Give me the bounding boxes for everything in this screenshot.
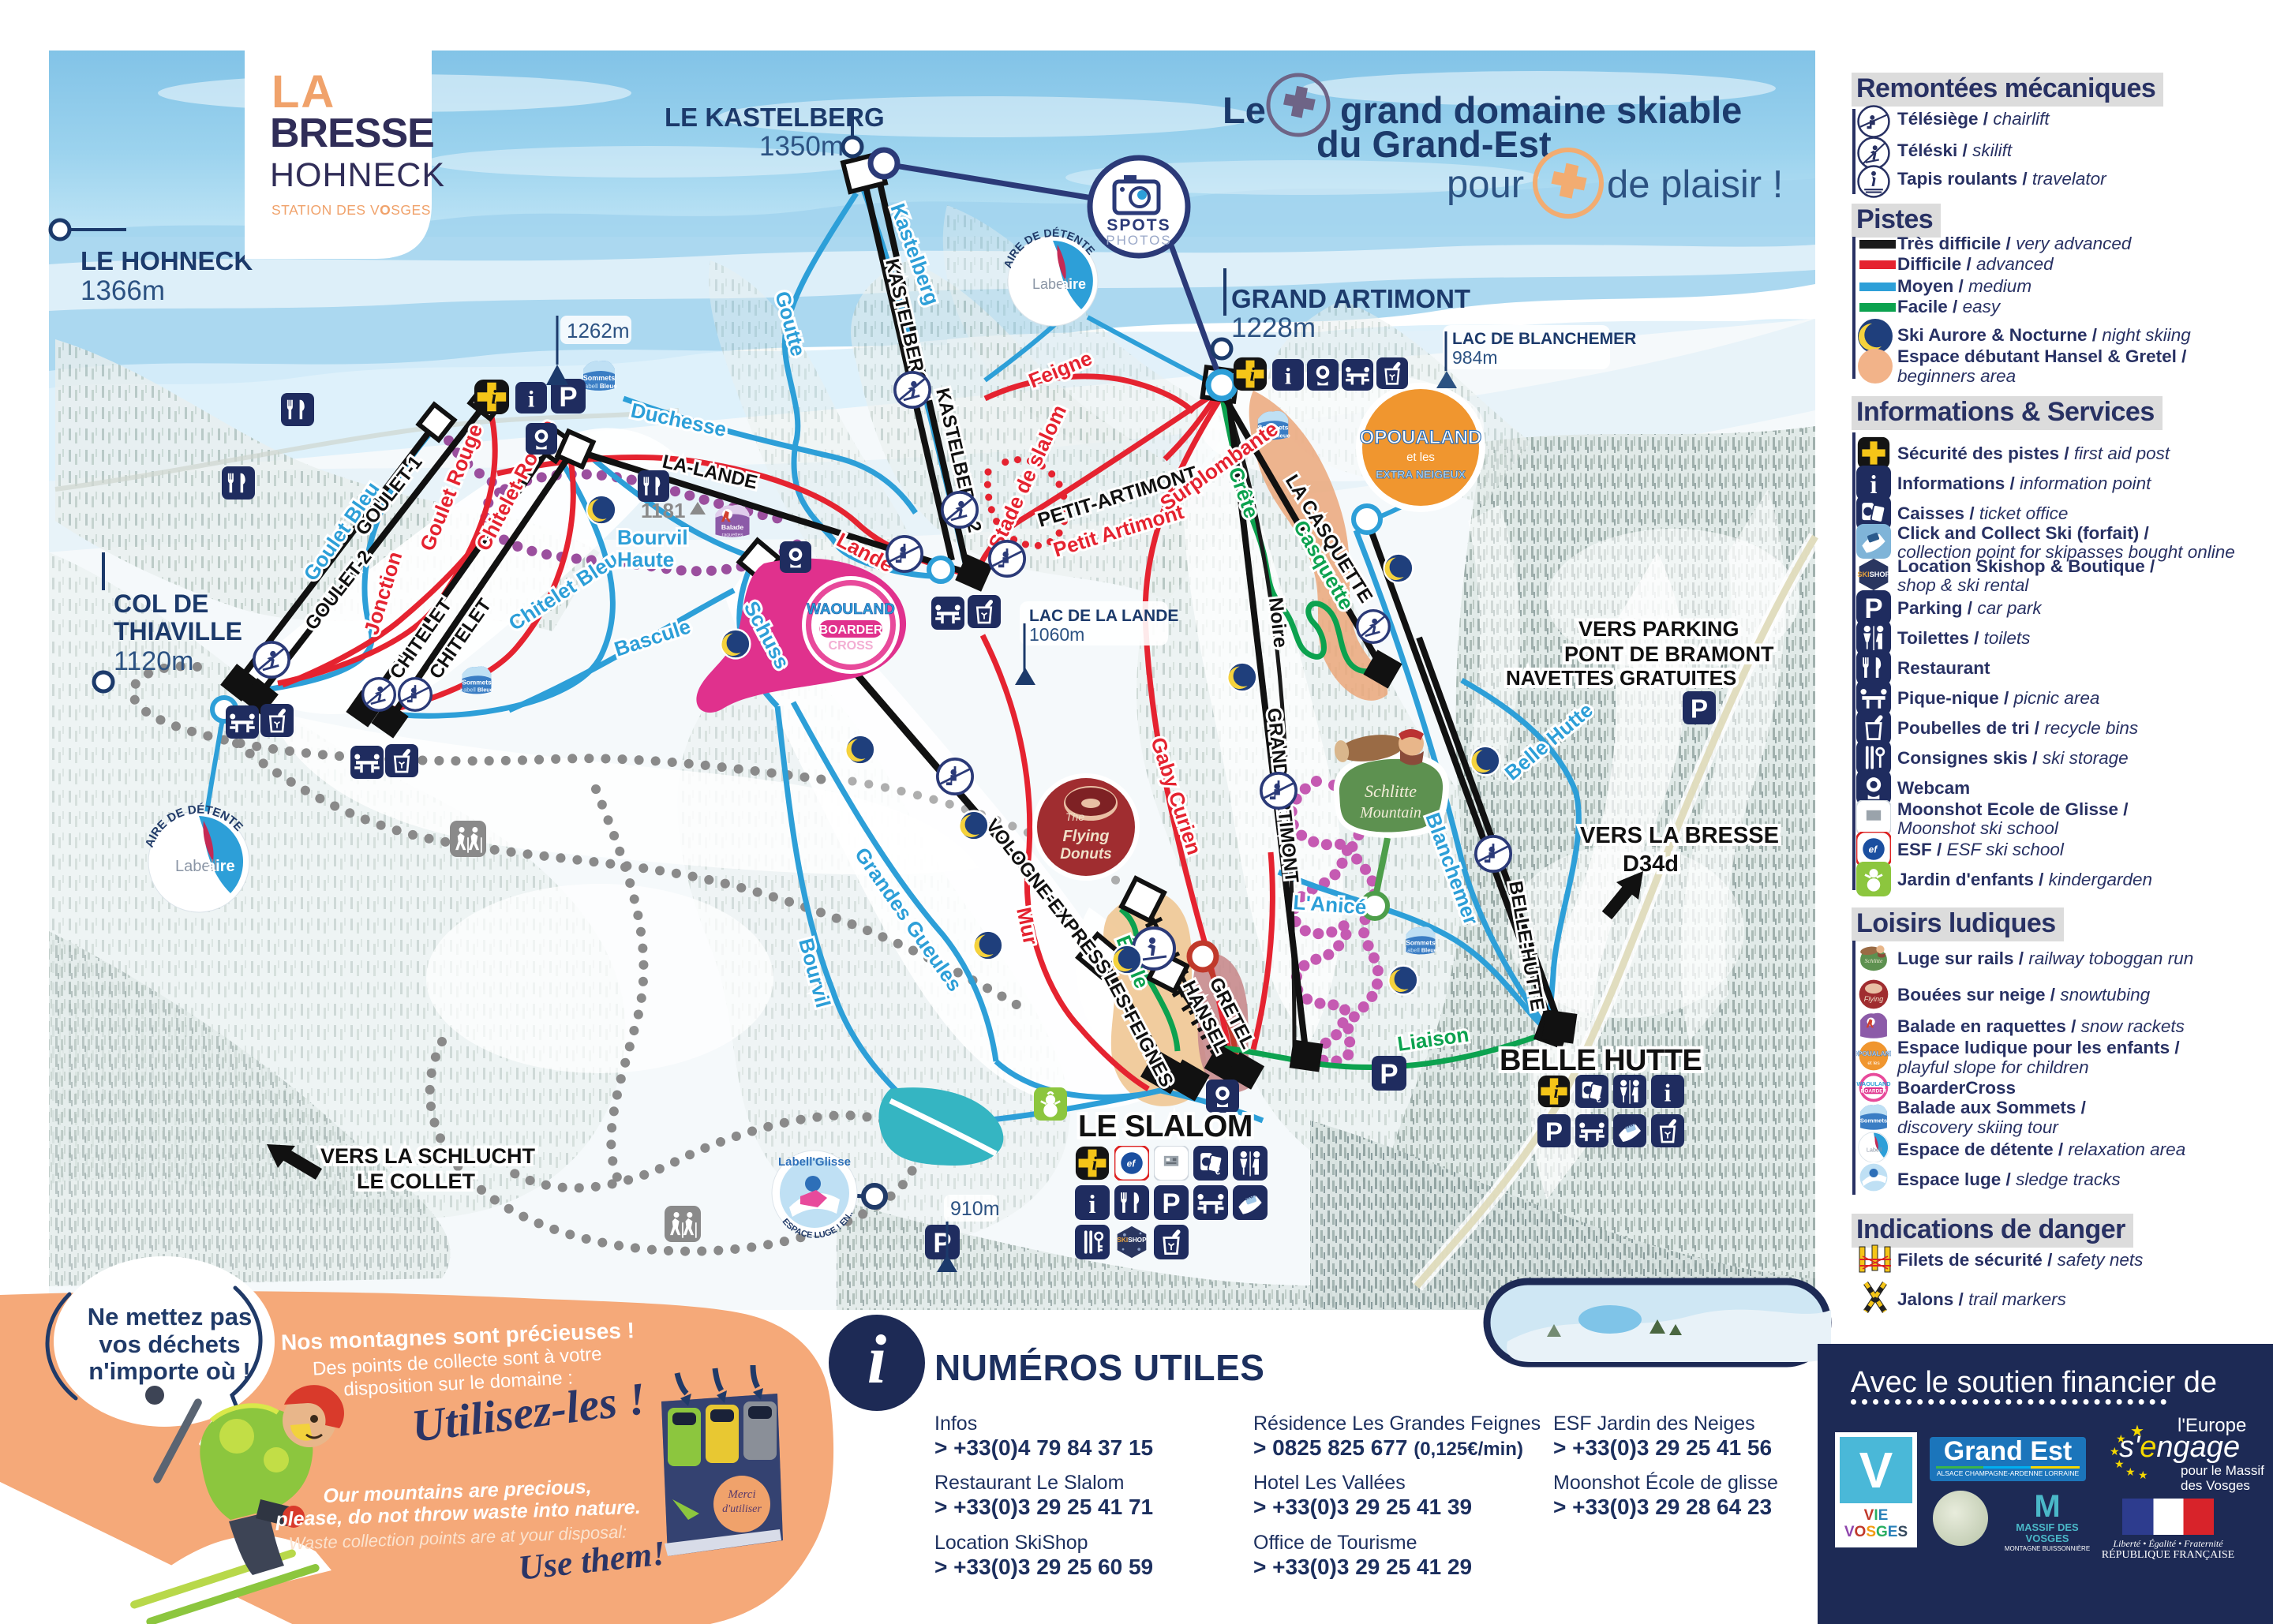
svg-text:de plaisir !: de plaisir !	[1607, 163, 1783, 206]
svg-text:OPOUALAND: OPOUALAND	[1360, 427, 1482, 448]
svg-text:Sommets: Sommets	[1860, 1117, 1887, 1124]
svg-text:LE SLALOM: LE SLALOM	[1078, 1109, 1253, 1143]
svg-text:pour: pour	[1447, 163, 1524, 206]
svg-text:Donuts: Donuts	[1060, 846, 1111, 863]
svg-text:LE HOHNECK: LE HOHNECK	[81, 246, 253, 275]
svg-text:SPOTS: SPOTS	[1107, 216, 1170, 234]
svg-text:VERS PARKING: VERS PARKING	[1578, 617, 1739, 641]
svg-text:1060m: 1060m	[1029, 624, 1084, 645]
svg-text:984m: 984m	[1452, 347, 1498, 368]
svg-text:CROSS: CROSS	[829, 639, 874, 653]
svg-text:VERS LA BRESSE: VERS LA BRESSE	[1580, 823, 1779, 848]
svg-text:HOHNECK: HOHNECK	[270, 156, 445, 194]
svg-text:THIAVILLE: THIAVILLE	[114, 617, 242, 645]
svg-text:1350m: 1350m	[759, 131, 844, 162]
svg-text:1120m: 1120m	[114, 646, 193, 676]
svg-text:SKISHOP: SKISHOP	[1857, 571, 1889, 578]
svg-text:WAOULAND: WAOULAND	[1856, 1080, 1890, 1087]
svg-text:Labell: Labell	[1867, 1147, 1882, 1154]
svg-text:PHOTOS: PHOTOS	[1106, 233, 1171, 248]
svg-text:ef: ef	[1869, 844, 1878, 855]
svg-text:Flying: Flying	[1864, 995, 1884, 1003]
svg-text:The: The	[1065, 810, 1084, 823]
svg-text:BOARDER: BOARDER	[1861, 1088, 1887, 1094]
svg-text:Schlitte: Schlitte	[1365, 781, 1417, 801]
svg-text:Merci: Merci	[727, 1488, 755, 1501]
svg-text:OPOUALAND: OPOUALAND	[1856, 1050, 1891, 1057]
svg-text:BELLE HUTTE: BELLE HUTTE	[1500, 1044, 1702, 1077]
svg-text:Schlitte: Schlitte	[1865, 957, 1883, 964]
svg-text:1262m: 1262m	[567, 319, 630, 342]
svg-text:D34d: D34d	[1623, 851, 1679, 877]
svg-text:Bourvil: Bourvil	[617, 526, 688, 549]
svg-text:EXTRA NEIGEUX: EXTRA NEIGEUX	[1376, 468, 1466, 481]
svg-text:Labell'Glisse: Labell'Glisse	[778, 1155, 851, 1169]
svg-text:BOARDER: BOARDER	[819, 623, 883, 637]
svg-text:1366m: 1366m	[81, 275, 165, 306]
svg-text:GRAND ARTIMONT: GRAND ARTIMONT	[1231, 284, 1470, 313]
svg-text:LAC DE BLANCHEMER: LAC DE BLANCHEMER	[1452, 330, 1636, 348]
svg-text:VERS LA SCHLUCHT: VERS LA SCHLUCHT	[320, 1144, 536, 1168]
svg-text:1228m: 1228m	[1231, 312, 1316, 343]
svg-text:Haute: Haute	[617, 548, 674, 571]
svg-text:COL DE: COL DE	[114, 589, 208, 618]
svg-text:Mountain: Mountain	[1359, 804, 1421, 821]
svg-text:P: P	[1864, 593, 1882, 624]
svg-text:1181: 1181	[641, 499, 685, 522]
svg-text:STATION DES VOSGES: STATION DES VOSGES	[271, 202, 431, 218]
svg-text:et les: et les	[1867, 1061, 1879, 1066]
svg-text:BRESSE: BRESSE	[270, 110, 434, 156]
svg-text:LAC DE LA LANDE: LAC DE LA LANDE	[1029, 607, 1178, 625]
svg-text:WAOULAND: WAOULAND	[807, 601, 895, 618]
svg-text:d'utiliser: d'utiliser	[722, 1503, 762, 1515]
svg-text:et les: et les	[1406, 451, 1435, 464]
svg-text:Le: Le	[1223, 89, 1266, 131]
svg-text:PONT DE BRAMONT: PONT DE BRAMONT	[1564, 642, 1774, 666]
svg-text:NAVETTES GRATUITES: NAVETTES GRATUITES	[1506, 666, 1736, 690]
svg-text:910m: 910m	[950, 1198, 1000, 1220]
svg-text:LE COLLET: LE COLLET	[357, 1169, 475, 1193]
svg-text:du Grand-Est: du Grand-Est	[1316, 123, 1552, 165]
svg-text:Flying: Flying	[1063, 828, 1110, 845]
svg-text:aire: aire	[207, 858, 235, 875]
svg-text:aire: aire	[1061, 276, 1086, 292]
